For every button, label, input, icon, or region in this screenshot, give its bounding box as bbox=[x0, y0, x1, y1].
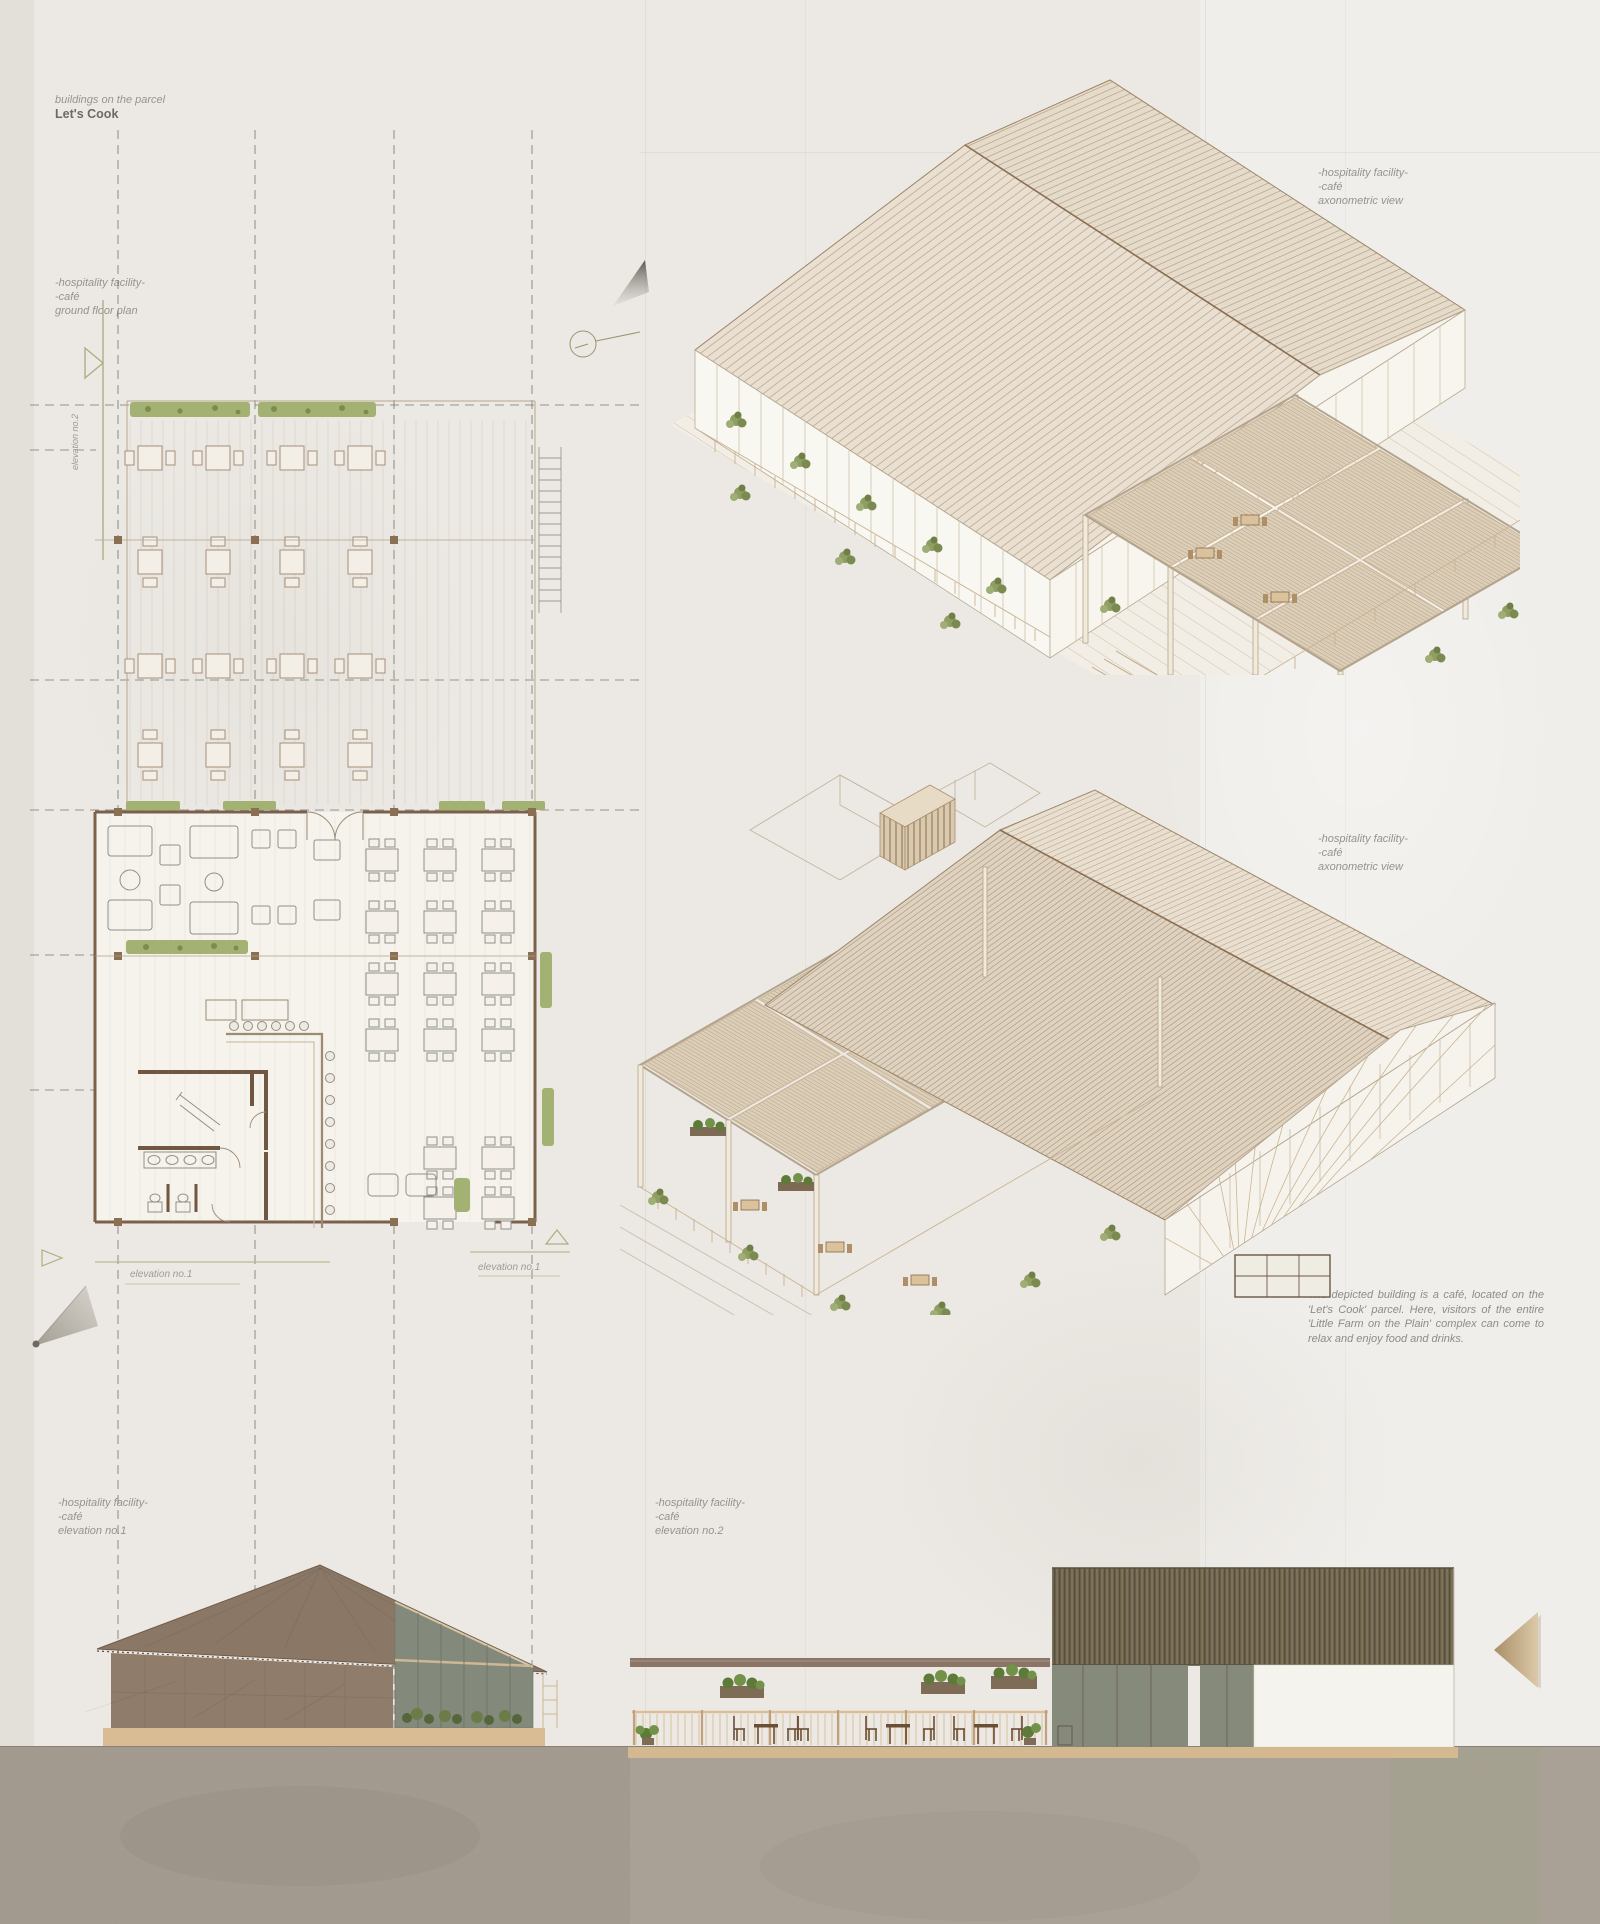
presentation-sheet: buildings on the parcel Let's Cook -hosp… bbox=[0, 0, 1600, 1924]
elevation1-drawing bbox=[85, 1552, 565, 1752]
page-title: Let's Cook bbox=[55, 107, 165, 121]
axonometric-view-top-drawing bbox=[640, 75, 1520, 675]
elevation-marker-side bbox=[85, 300, 103, 560]
slat-facade-band bbox=[1052, 1568, 1454, 1665]
ground-strip bbox=[0, 1746, 1600, 1924]
hanging-planters bbox=[720, 1664, 1037, 1698]
header-note: buildings on the parcel bbox=[55, 94, 165, 106]
end-window-grid bbox=[1235, 1255, 1330, 1297]
pergola-beam bbox=[630, 1658, 1050, 1667]
label-elevation2: -hospitality facility- -café elevation n… bbox=[655, 1496, 745, 1538]
edge-arrow-icon bbox=[1486, 1604, 1542, 1696]
cursor-mark-top-icon bbox=[607, 258, 653, 310]
marker-label-bottom-left: elevation no.1 bbox=[130, 1269, 192, 1280]
elevation2-drawing bbox=[628, 1548, 1528, 1760]
elevation1-wall bbox=[111, 1653, 393, 1728]
north-indicator-icon bbox=[570, 331, 640, 357]
marker-label-bottom-right: elevation no.1 bbox=[478, 1262, 540, 1273]
chimney-vent bbox=[880, 785, 955, 870]
cursor-mark-left-icon bbox=[28, 1282, 104, 1352]
elevation1-base bbox=[103, 1728, 545, 1746]
elevation-marker-bottom bbox=[42, 1230, 570, 1284]
sheet-header: buildings on the parcel Let's Cook bbox=[55, 94, 165, 121]
axonometric-view-middle-drawing bbox=[600, 735, 1500, 1315]
paper-shade-left bbox=[0, 0, 34, 1924]
ground-floor-plan-drawing: elevation no.2 elevation no.1 elevation … bbox=[30, 300, 640, 1300]
elevation2-base bbox=[628, 1747, 1458, 1758]
marker-label-side: elevation no.2 bbox=[70, 414, 80, 470]
